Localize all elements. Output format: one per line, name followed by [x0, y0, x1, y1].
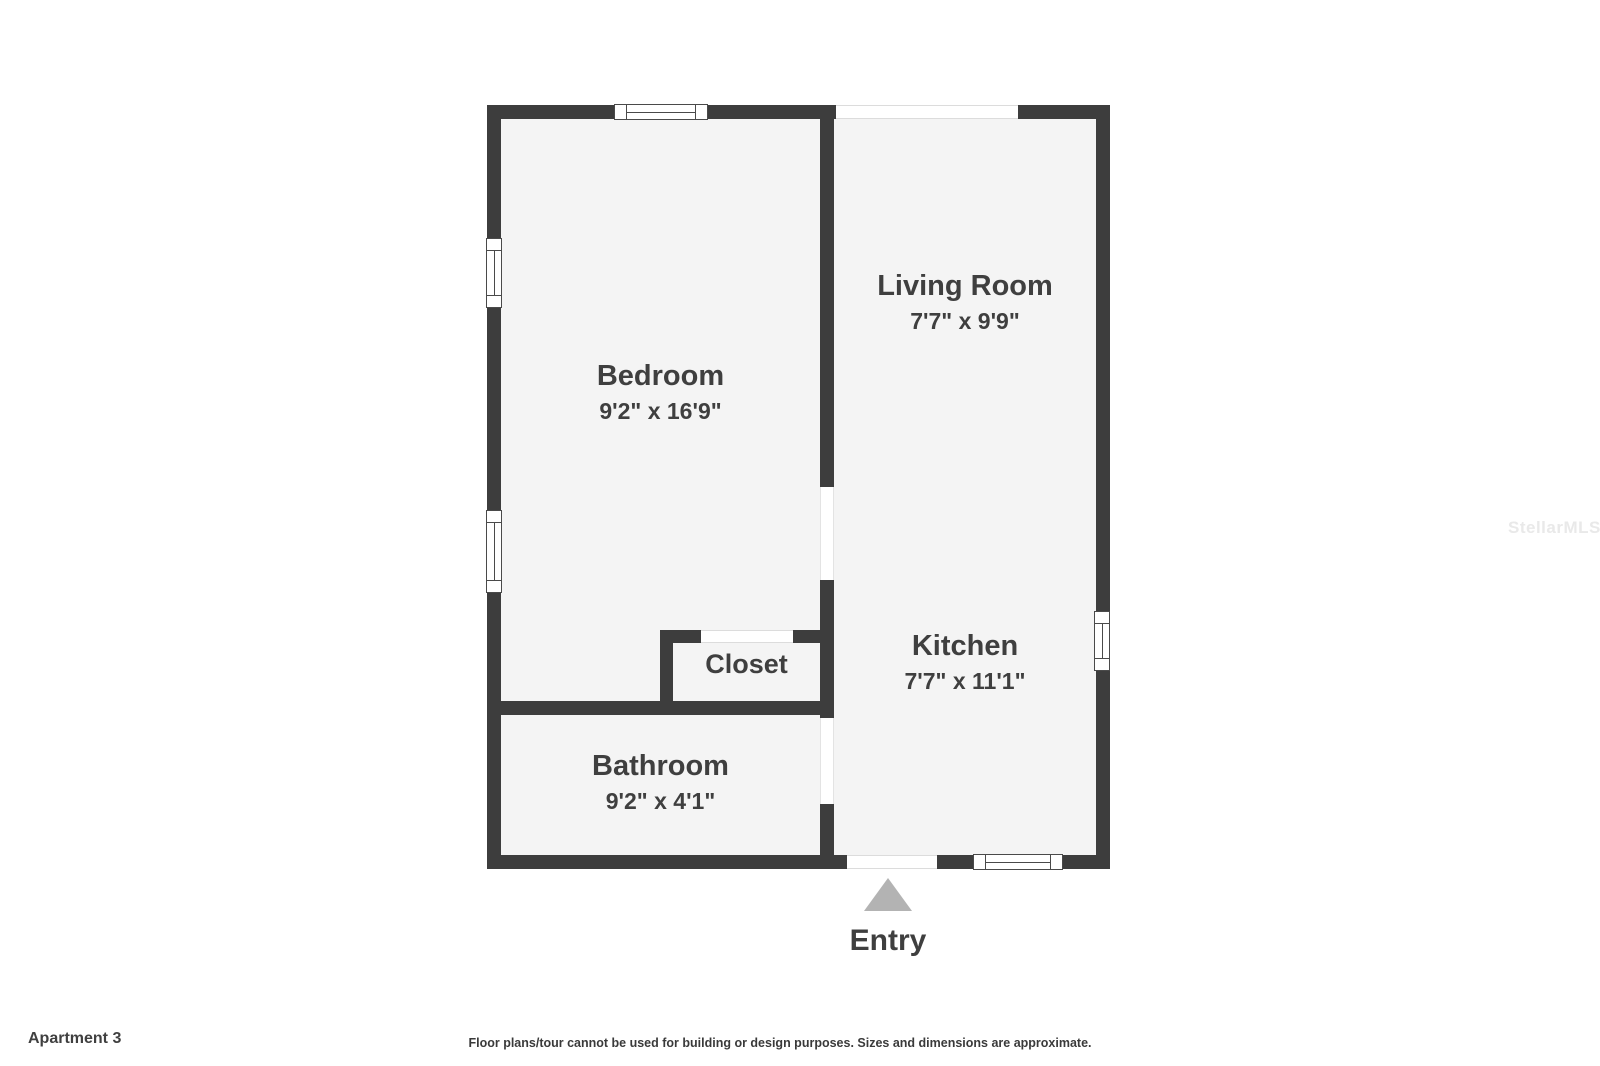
- bedroom-left-window-upper-icon: [486, 238, 502, 308]
- window-pane-line: [1095, 658, 1109, 659]
- bedroom-door-opening: [820, 487, 834, 580]
- entry-door-opening: [847, 855, 937, 869]
- entry-arrow-icon: [864, 878, 912, 911]
- room-dims: 7'7" x 11'1": [834, 666, 1096, 696]
- closet-label: Closet: [673, 648, 820, 680]
- window-pane-line: [695, 105, 696, 119]
- room-name: Kitchen: [834, 628, 1096, 664]
- bedroom-top-window-icon: [614, 104, 708, 120]
- room-name: Bathroom: [501, 748, 820, 784]
- room-name: Living Room: [834, 268, 1096, 304]
- closet-door-opening: [701, 630, 793, 643]
- bathroom-door-opening: [820, 718, 834, 804]
- entry-label: Entry: [828, 924, 948, 958]
- disclaimer-text: Floor plans/tour cannot be used for buil…: [0, 1036, 1560, 1050]
- room-name: Closet: [673, 648, 820, 680]
- kitchen-bottom-window-icon: [973, 854, 1063, 870]
- room-name: Bedroom: [501, 358, 820, 394]
- room-dims: 9'2" x 4'1": [501, 786, 820, 816]
- bedroom-left-window-lower-icon: [486, 510, 502, 593]
- wall-left: [487, 105, 501, 869]
- window-pane-line: [487, 295, 501, 296]
- window-pane-line: [626, 105, 627, 119]
- room-dims: 9'2" x 16'9": [501, 396, 820, 426]
- bedroom-label: Bedroom 9'2" x 16'9": [501, 358, 820, 426]
- window-pane-line: [487, 522, 501, 523]
- window-pane-line: [1095, 623, 1109, 624]
- watermark: StellarMLS: [1508, 518, 1600, 538]
- floorplan-page: Bedroom 9'2" x 16'9" Living Room 7'7" x …: [0, 0, 1600, 1066]
- window-pane-line: [1050, 855, 1051, 869]
- window-pane-line: [487, 250, 501, 251]
- bathroom-label: Bathroom 9'2" x 4'1": [501, 748, 820, 816]
- living-room-top-opening: [836, 105, 1018, 119]
- wall-right: [1096, 105, 1110, 869]
- wall-closet-left: [660, 643, 673, 715]
- living-room-label: Living Room 7'7" x 9'9": [834, 268, 1096, 336]
- window-pane-line: [985, 855, 986, 869]
- window-pane-line: [487, 580, 501, 581]
- kitchen-right-window-icon: [1094, 611, 1110, 671]
- kitchen-label: Kitchen 7'7" x 11'1": [834, 628, 1096, 696]
- room-dims: 7'7" x 9'9": [834, 306, 1096, 336]
